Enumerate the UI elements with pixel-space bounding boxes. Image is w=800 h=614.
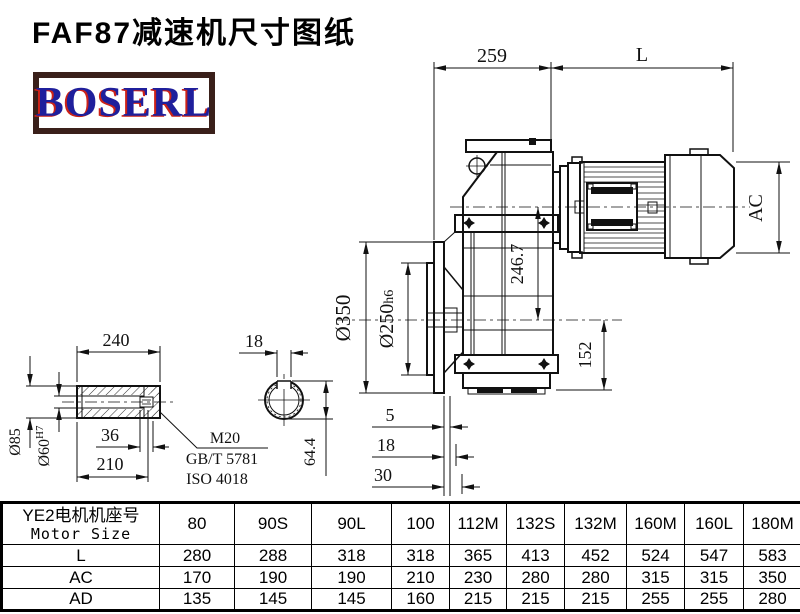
motor-side-view [553,149,734,264]
dim-L-label: L [636,44,648,66]
table-cell: 280 [507,567,565,589]
bolt-symbol-icon [466,155,488,177]
table-cell: 210 [392,567,450,589]
dim-85-label: Ø85 [7,428,24,456]
row-label: L [2,545,160,567]
std-gb-label: GB/T 5781 [186,451,258,468]
dim-644-label: 64.4 [302,438,319,466]
table-cell: 215 [450,589,507,611]
column-header: 100 [392,503,450,545]
dim-36-label: 36 [101,425,119,445]
thread-spec-label: M20 [210,430,240,447]
table-cell: 288 [235,545,312,567]
std-iso-label: ISO 4018 [186,471,248,488]
table-row-L: L 280 288 318 318 365 413 452 524 547 58… [2,545,800,567]
table-cell: 215 [565,589,627,611]
table-cell: 583 [744,545,800,567]
table-cell: 452 [565,545,627,567]
table-cell: 365 [450,545,507,567]
column-header: 132S [507,503,565,545]
main-dimensions: 259 L AC Ø350 Ø250h6 246.7 152 5 18 30 [331,44,790,496]
hollow-shaft-detail: 240 Ø85 Ø60H7 36 210 M20 GB/T 5781 ISO 4… [7,330,268,488]
dim-flange-od-label: Ø350 [331,295,355,342]
table-cell: 160 [392,589,450,611]
dim-210-label: 210 [97,454,124,474]
table-cell: 230 [450,567,507,589]
column-header: 90L [312,503,392,545]
table-cell: 413 [507,545,565,567]
dim-18-label: 18 [377,435,395,455]
table-cell: 318 [312,545,392,567]
dim-spigot-label: Ø250h6 [376,290,398,348]
column-header: 160M [627,503,685,545]
dim-152-label: 152 [575,342,595,369]
table-cell: 215 [507,589,565,611]
dim-30-label: 30 [374,465,392,485]
column-header: 80 [160,503,235,545]
table-row-AD: AD 135 145 145 160 215 215 215 255 255 2… [2,589,800,611]
table-cell: 280 [565,567,627,589]
page: { "title": "FAF87减速机尺寸图纸", "logo": { "te… [0,0,800,614]
motor-size-label-en: Motor Size [3,526,159,543]
dim-key-18-label: 18 [245,331,263,351]
column-header: 132M [565,503,627,545]
dim-60H7-label: Ø60H7 [34,425,53,467]
table-row-AC: AC 170 190 190 210 230 280 280 315 315 3… [2,567,800,589]
table-cell: 255 [627,589,685,611]
motor-size-table: YE2电机机座号 Motor Size 80 90S 90L 100 112M … [0,501,800,612]
table-cell: 280 [160,545,235,567]
table-cell: 255 [685,589,744,611]
table-cell: 524 [627,545,685,567]
table-cell: 315 [627,567,685,589]
table-cell: 135 [160,589,235,611]
table-cell: 318 [392,545,450,567]
row-label: AC [2,567,160,589]
column-header: 160L [685,503,744,545]
column-header: 90S [235,503,312,545]
table-cell: 145 [312,589,392,611]
motor-size-label-cn: YE2电机机座号 [3,506,159,526]
dim-259-label: 259 [477,45,507,67]
table-cell: 145 [235,589,312,611]
table-cell: 190 [312,567,392,589]
motor-size-header-cell: YE2电机机座号 Motor Size [2,503,160,545]
table-cell: 190 [235,567,312,589]
table-cell: 170 [160,567,235,589]
dim-center-height-label: 246.7 [507,244,527,285]
table-cell: 315 [685,567,744,589]
table-cell: 280 [744,589,800,611]
column-header: 180M [744,503,800,545]
table-cell: 547 [685,545,744,567]
table-header-row: YE2电机机座号 Motor Size 80 90S 90L 100 112M … [2,503,800,545]
dim-240-label: 240 [103,330,130,350]
dim-AC-label: AC [745,194,767,222]
column-header: 112M [450,503,507,545]
row-label: AD [2,589,160,611]
table-cell: 350 [744,567,800,589]
dim-5-label: 5 [386,405,395,425]
